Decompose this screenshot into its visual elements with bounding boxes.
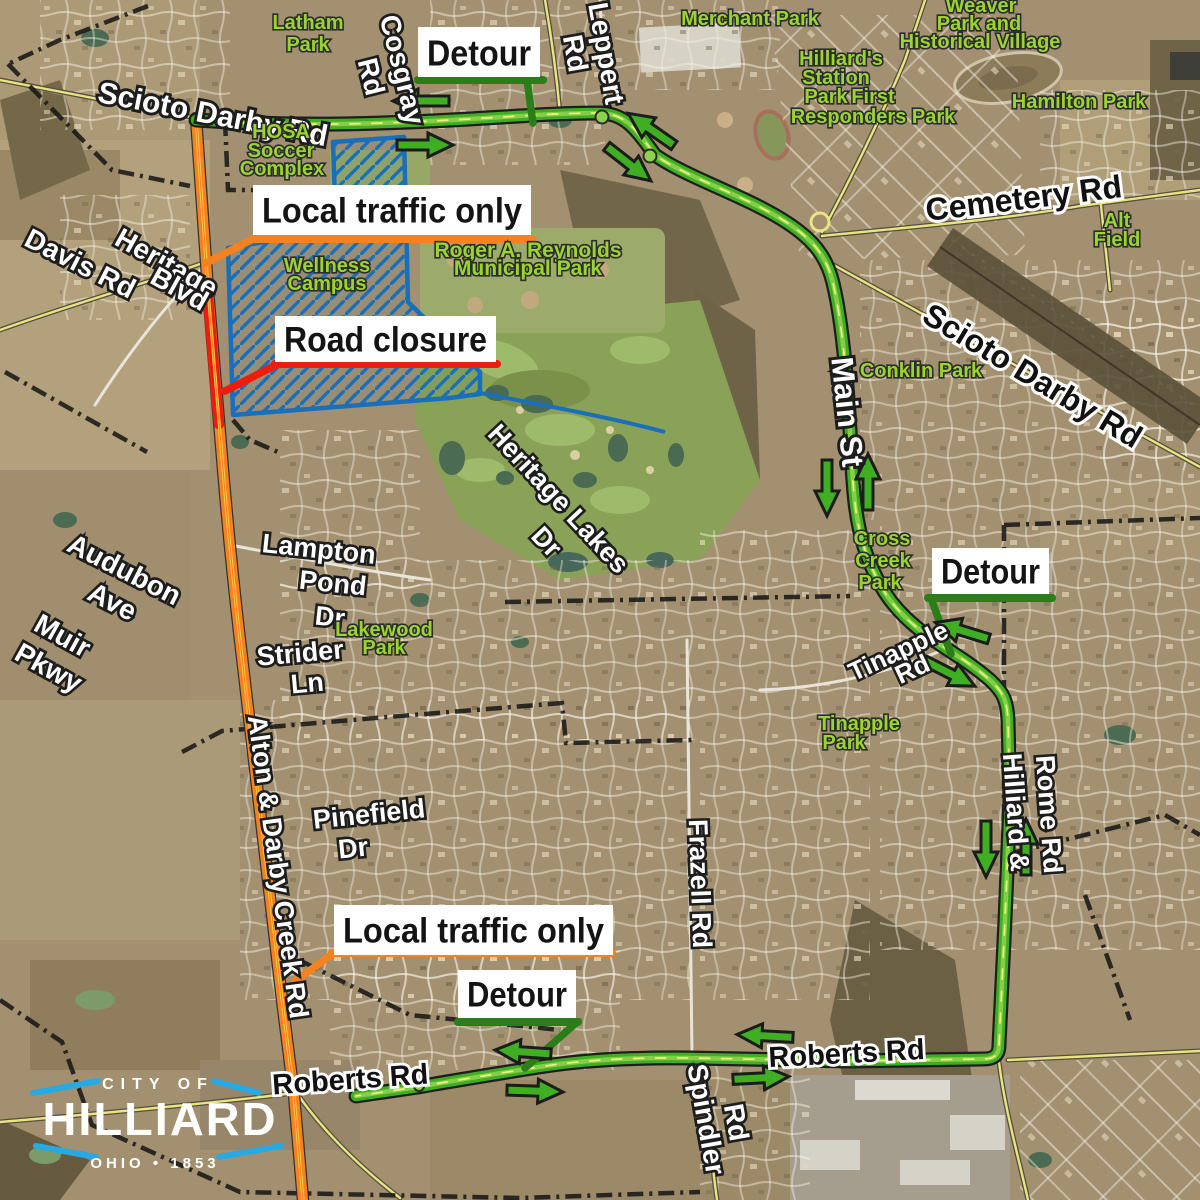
roundabout-icon bbox=[644, 150, 657, 163]
park-label: Complex bbox=[240, 158, 324, 180]
park-label: Campus bbox=[288, 273, 367, 295]
roundabout-icon bbox=[596, 111, 609, 124]
road-label: Dr bbox=[337, 832, 370, 865]
park-label: Merchant Park bbox=[681, 8, 820, 30]
park-label: Park bbox=[822, 732, 866, 754]
park-label: Park bbox=[286, 34, 330, 56]
road-label: Ln bbox=[289, 667, 324, 700]
park-label: Historical Village bbox=[900, 31, 1061, 53]
park-label: Municipal Park bbox=[454, 257, 603, 280]
detour-middle-label: Detour bbox=[941, 553, 1040, 592]
park-label: Hamilton Park bbox=[1012, 91, 1147, 113]
roundabout-icon bbox=[811, 213, 829, 231]
detour-top-label: Detour bbox=[427, 33, 531, 74]
park-label: Latham bbox=[272, 12, 343, 34]
detour-bottom-label: Detour bbox=[467, 976, 567, 1015]
logo-city-of: CITY OF bbox=[102, 1076, 214, 1093]
map-canvas: Scioto Darby RdCosgrayRdLeppertRdDavis R… bbox=[0, 0, 1200, 1200]
park-label: Park bbox=[858, 572, 902, 594]
park-label: Responders Park bbox=[791, 106, 956, 128]
road-label: Rd bbox=[718, 1101, 755, 1143]
park-label: Conklin Park bbox=[860, 360, 983, 382]
road-label: Frazell Rd bbox=[683, 819, 717, 949]
park-label: Park bbox=[362, 637, 406, 659]
park-label: Park bbox=[804, 86, 848, 108]
park-label: Cross bbox=[854, 528, 911, 550]
detour-map: Scioto Darby RdCosgrayRdLeppertRdDavis R… bbox=[0, 0, 1200, 1200]
road-label: Rd bbox=[557, 32, 594, 74]
park-label: Field bbox=[1094, 229, 1141, 251]
logo-name: HILLIARD bbox=[43, 1093, 278, 1145]
road-closure-label: Road closure bbox=[284, 321, 487, 360]
local-traffic-top-label: Local traffic only bbox=[262, 192, 522, 231]
local-traffic-bottom-label: Local traffic only bbox=[343, 912, 604, 951]
park-label: First bbox=[851, 86, 895, 108]
logo-tagline: OHIO • 1853 bbox=[90, 1155, 219, 1172]
park-label: Creek bbox=[855, 550, 911, 572]
